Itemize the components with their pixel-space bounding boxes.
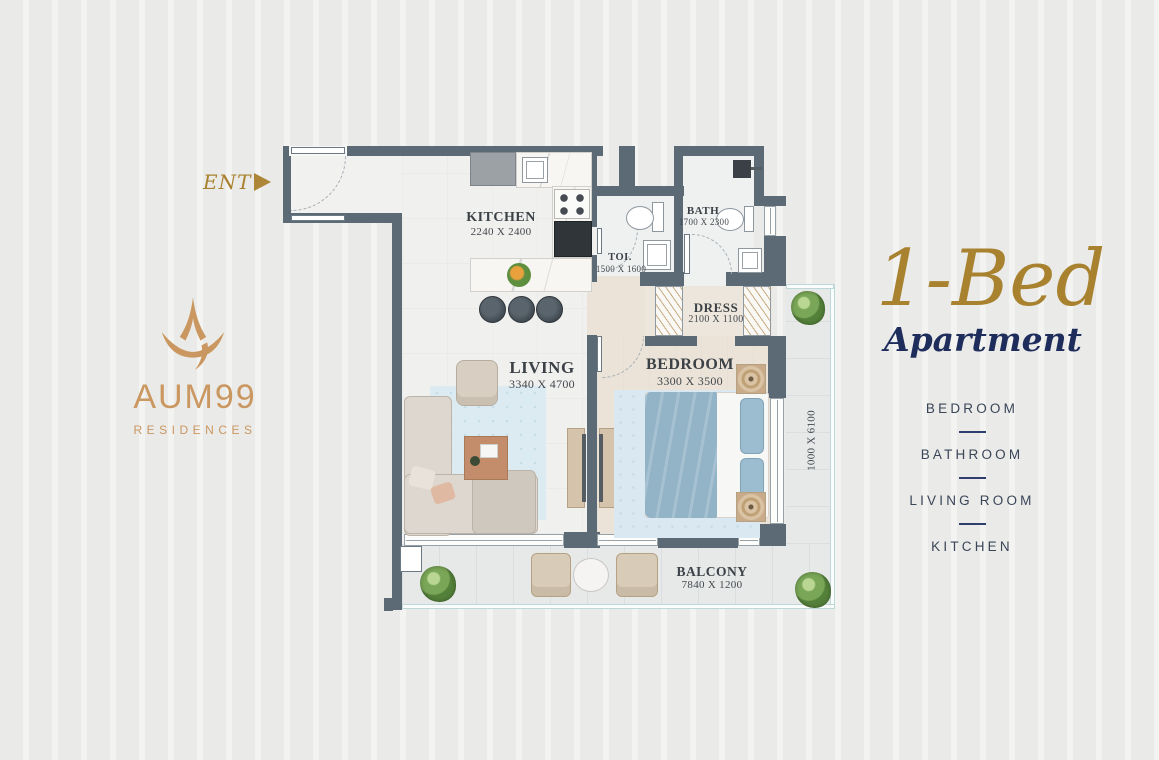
toilet-sink bbox=[643, 240, 671, 270]
bath-side-window bbox=[764, 206, 776, 236]
nightstand-rug bbox=[738, 366, 764, 392]
bath-door-opening bbox=[684, 272, 726, 286]
wall-bedroom-corner-bottom-right bbox=[760, 524, 786, 546]
bath-door-leaf bbox=[684, 234, 690, 274]
wall-living-bottom bbox=[564, 532, 600, 548]
coffee-table-plant bbox=[470, 456, 480, 466]
feature-item-bathroom: BATHROOM bbox=[872, 447, 1072, 463]
entrance-arrow-icon bbox=[254, 173, 271, 191]
dress-label: DRESS bbox=[694, 301, 738, 314]
wall-bath-right-ext bbox=[754, 196, 786, 206]
bed-pillow bbox=[740, 398, 764, 454]
tv-living bbox=[582, 434, 586, 502]
balcony-dimension: 7840 X 1200 bbox=[682, 580, 743, 591]
bedroom-side-window bbox=[770, 398, 784, 524]
unit-title: 1-Bed bbox=[876, 240, 1105, 318]
oven bbox=[554, 221, 592, 257]
bar-stool bbox=[536, 296, 563, 323]
entrance-label: ENT bbox=[203, 170, 251, 194]
balcony-glass-top bbox=[786, 284, 834, 289]
logo-name: AUM99 bbox=[95, 378, 295, 417]
wall-living-left bbox=[392, 213, 402, 546]
stove bbox=[554, 189, 590, 219]
kitchen-dimension: 2240 X 2400 bbox=[471, 227, 532, 238]
tv-bedroom bbox=[599, 434, 603, 502]
entry-door-leaf bbox=[291, 147, 345, 154]
balcony-label: BALCONY bbox=[676, 565, 747, 579]
bedroom-label: BEDROOM bbox=[646, 357, 734, 373]
feature-list: BEDROOM BATHROOM LIVING ROOM KITCHEN bbox=[872, 401, 1072, 569]
wall-living-bedroom bbox=[587, 335, 597, 534]
feature-divider bbox=[959, 523, 986, 525]
bar-stool bbox=[479, 296, 506, 323]
food-bowl bbox=[507, 263, 531, 287]
bedroom-dimension: 3300 X 3500 bbox=[657, 375, 723, 387]
logo-mark-icon bbox=[160, 296, 226, 372]
toilet-bowl bbox=[626, 206, 654, 230]
bed-duvet bbox=[645, 392, 717, 518]
bedroom-vestibule-floor bbox=[587, 276, 645, 336]
ac-ledge bbox=[400, 546, 422, 572]
bath-sink bbox=[738, 248, 762, 273]
side-balcony-dimension: 1000 X 6100 bbox=[807, 410, 818, 471]
feature-item-bedroom: BEDROOM bbox=[872, 401, 1072, 417]
wardrobe bbox=[743, 286, 771, 336]
entry-closet bbox=[291, 215, 345, 221]
wall-entry-left bbox=[283, 146, 291, 223]
kitchen-sink bbox=[522, 157, 548, 183]
wall-bath-left bbox=[674, 146, 683, 282]
toilet-label: TOI. bbox=[608, 253, 632, 264]
bath-dimension: 1700 X 2300 bbox=[679, 218, 729, 227]
balcony-plant bbox=[795, 572, 831, 608]
kitchen-label: KITCHEN bbox=[466, 211, 536, 225]
wall-bedroom-corner-right bbox=[768, 336, 786, 398]
coffee-table-book bbox=[480, 444, 498, 458]
balcony-glass-right bbox=[830, 284, 835, 608]
dress-dimension: 2100 X 1100 bbox=[688, 315, 743, 325]
feature-divider bbox=[959, 431, 986, 433]
wall-bath-top bbox=[674, 146, 764, 156]
shower-arm bbox=[751, 167, 762, 170]
wall-dress-bottom-left bbox=[645, 336, 697, 346]
balcony-plant bbox=[420, 566, 456, 602]
feature-divider bbox=[959, 477, 986, 479]
balcony-armchair bbox=[616, 553, 658, 597]
toilet-dimension: 1500 X 1600 bbox=[596, 265, 646, 274]
nightstand-rug bbox=[738, 494, 764, 520]
feature-item-kitchen: KITCHEN bbox=[872, 539, 1072, 555]
fridge bbox=[470, 152, 516, 186]
logo-tagline: RESIDENCES bbox=[95, 423, 295, 437]
bath-toilet-tank bbox=[744, 206, 754, 232]
balcony-armchair bbox=[531, 553, 571, 597]
armchair bbox=[456, 360, 498, 406]
living-label: LIVING bbox=[509, 359, 574, 376]
wall-toilet-top bbox=[596, 186, 684, 196]
wall-shaft-stub bbox=[619, 146, 635, 190]
unit-subtitle: Apartment bbox=[884, 320, 1082, 359]
balcony-table bbox=[573, 558, 609, 592]
balcony-glass-bottom bbox=[402, 604, 835, 609]
wardrobe bbox=[655, 286, 683, 336]
shower-head bbox=[733, 160, 751, 178]
feature-item-living-room: LIVING ROOM bbox=[872, 493, 1072, 509]
wall-stub-bottom-left bbox=[384, 598, 393, 611]
balcony-plant bbox=[791, 291, 825, 325]
living-dimension: 3340 X 4700 bbox=[509, 378, 575, 390]
kitchen-counter-bottom bbox=[470, 258, 592, 292]
bar-stool bbox=[508, 296, 535, 323]
bath-label: BATH bbox=[687, 206, 719, 217]
